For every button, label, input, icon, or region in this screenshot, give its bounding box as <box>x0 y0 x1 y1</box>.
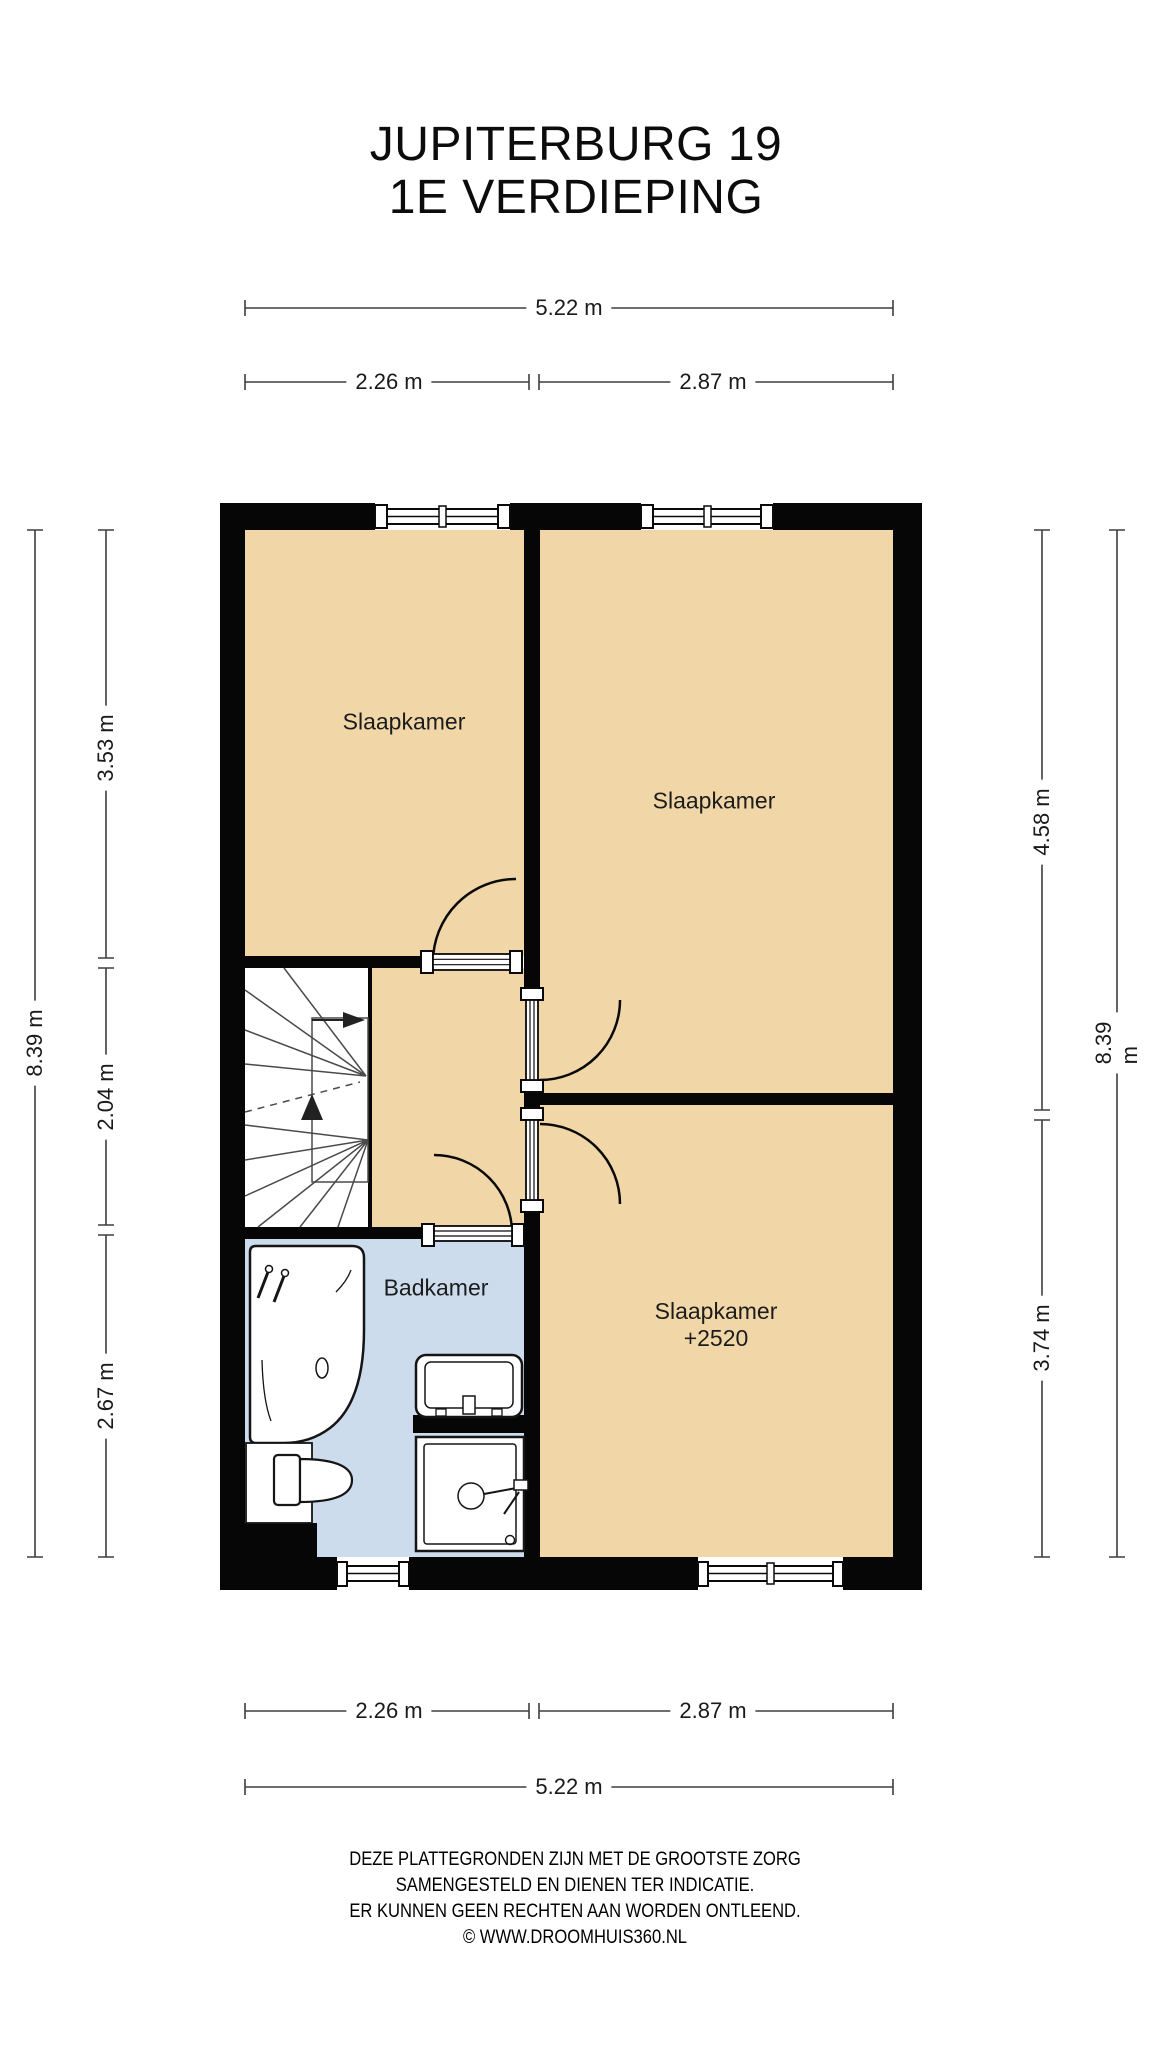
wall-center-vertical-3 <box>524 1204 540 1590</box>
disclaimer: DEZE PLATTEGRONDEN ZIJN MET DE GROOTSTE … <box>349 1846 801 1950</box>
wall-bottom-1 <box>220 1557 337 1590</box>
dim-bottom-total: 5.22 m <box>526 1774 611 1800</box>
floor-landing <box>372 968 524 1227</box>
shower <box>416 1437 528 1551</box>
sink-tap-icon <box>463 1396 475 1414</box>
shower-head-icon <box>514 1480 528 1490</box>
page-title: JUPITERBURG 19 1E VERDIEPING <box>0 118 1152 224</box>
wall-bottom-2 <box>409 1557 698 1590</box>
dim-line-top-split <box>245 374 893 390</box>
dim-right-top: 4.58 m <box>1029 779 1055 864</box>
window-top-right <box>641 503 773 530</box>
disclaimer-line-1: DEZE PLATTEGRONDEN ZIJN MET DE GROOTSTE … <box>349 1846 801 1872</box>
wall-left <box>220 503 245 1590</box>
room-label-bedroom-top-right: Slaapkamer <box>653 788 776 815</box>
dim-line-bottom-split <box>245 1703 893 1719</box>
dim-line-right-split <box>1034 530 1050 1557</box>
dim-bottom-left: 2.26 m <box>346 1698 431 1724</box>
dim-bottom-right: 2.87 m <box>670 1698 755 1724</box>
wall-right <box>893 503 922 1590</box>
floor-bedroom-top-left <box>245 530 524 956</box>
dim-top-total: 5.22 m <box>526 295 611 321</box>
room-label-bedroom-bottom: Slaapkamer +2520 <box>655 1298 778 1352</box>
dim-left-top: 3.53 m <box>93 705 119 790</box>
dim-right-total: 8.39 m <box>1091 1013 1143 1074</box>
window-top-left <box>375 503 510 530</box>
dim-left-total: 8.39 m <box>22 1000 48 1085</box>
dim-left-bottom: 2.67 m <box>93 1353 119 1438</box>
disclaimer-line-3: ER KUNNEN GEEN RECHTEN AAN WORDEN ONTLEE… <box>349 1898 801 1924</box>
wall-bottom-3 <box>843 1557 922 1590</box>
title-address: JUPITERBURG 19 <box>0 118 1152 171</box>
wall-top-2 <box>510 503 641 530</box>
room-label-bedroom-bottom-level: +2520 <box>655 1325 778 1352</box>
wall-bedroom-left-bottom <box>245 956 421 968</box>
wall-center-vertical-1 <box>524 530 540 996</box>
floorplan-page: JUPITERBURG 19 1E VERDIEPING 5.22 m 2.26… <box>0 0 1152 2048</box>
disclaimer-copyright: © WWW.DROOMHUIS360.NL <box>349 1924 801 1950</box>
window-bathroom <box>337 1557 409 1590</box>
dim-left-middle: 2.04 m <box>93 1054 119 1139</box>
window-bedroom-bottom <box>698 1557 843 1590</box>
wall-between-right-bedrooms <box>540 1093 893 1105</box>
sink <box>416 1355 522 1417</box>
room-label-bedroom-bottom-name: Slaapkamer <box>655 1298 778 1325</box>
disclaimer-line-2: SAMENGESTELD EN DIENEN TER INDICATIE. <box>349 1872 801 1898</box>
dim-right-bottom: 3.74 m <box>1029 1295 1055 1380</box>
title-floor: 1E VERDIEPING <box>0 171 1152 224</box>
room-label-bedroom-top-left: Slaapkamer <box>343 709 466 736</box>
room-label-bathroom: Badkamer <box>384 1275 489 1302</box>
wall-step-bottom-left <box>220 1523 317 1559</box>
dim-top-left: 2.26 m <box>346 369 431 395</box>
wall-bathroom-top <box>245 1227 422 1239</box>
dim-top-right: 2.87 m <box>670 369 755 395</box>
